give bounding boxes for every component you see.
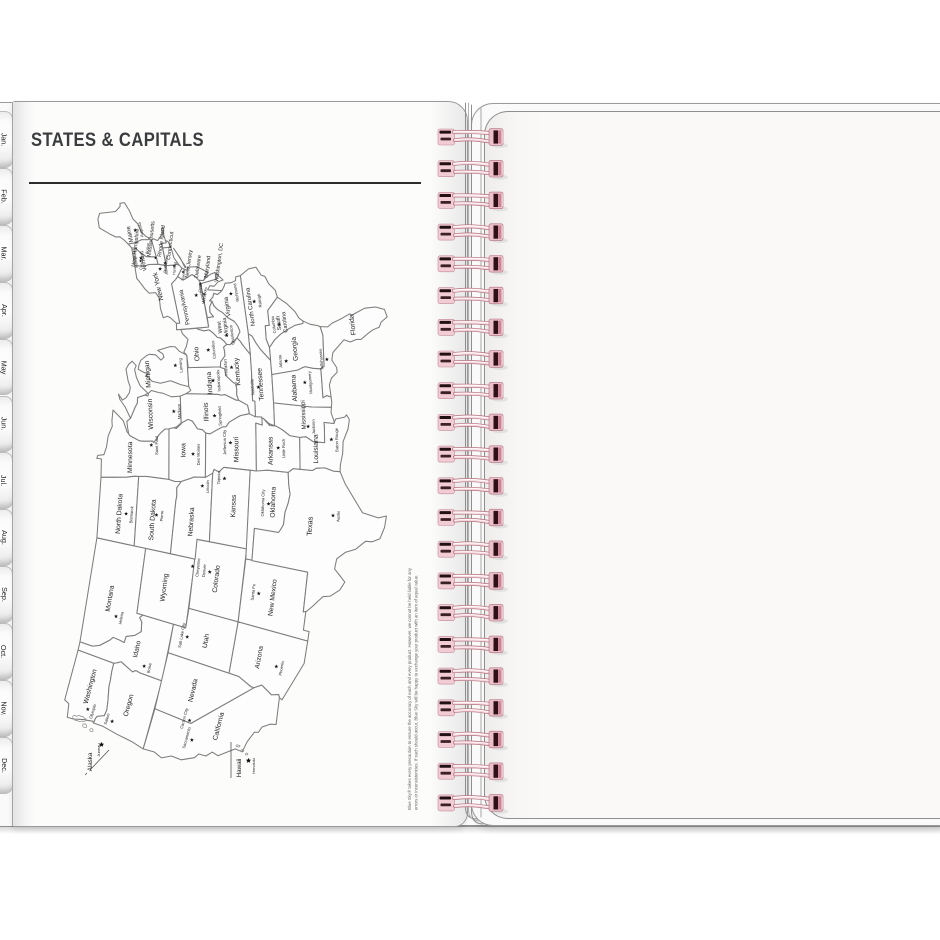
svg-text:Lincoln: Lincoln	[205, 479, 210, 493]
svg-text:Iowa: Iowa	[180, 443, 187, 458]
svg-text:Missouri: Missouri	[233, 436, 240, 462]
svg-text:Pierre: Pierre	[159, 510, 165, 522]
svg-text:Jackson: Jackson	[311, 418, 317, 434]
svg-text:Springfield: Springfield	[217, 406, 223, 426]
svg-text:Little Rock: Little Rock	[281, 438, 286, 458]
svg-text:Wisconsin: Wisconsin	[147, 398, 155, 429]
svg-text:errors or inconsistencies. If: errors or inconsistencies. If such shoul…	[414, 575, 419, 810]
svg-text:Arkansas: Arkansas	[267, 436, 274, 465]
svg-text:Texas: Texas	[305, 516, 315, 536]
svg-text:Topeka: Topeka	[216, 470, 221, 484]
svg-text:Oklahoma City: Oklahoma City	[260, 489, 266, 517]
svg-text:Washington, DC: Washington, DC	[214, 243, 225, 283]
svg-text:Minnesota: Minnesota	[127, 441, 134, 473]
svg-text:Baton Rouge: Baton Rouge	[334, 427, 340, 452]
svg-text:Ohio: Ohio	[193, 346, 201, 361]
svg-text:Madison: Madison	[176, 403, 182, 419]
svg-text:Saint Paul: Saint Paul	[154, 436, 159, 455]
svg-text:Jefferson City: Jefferson City	[222, 429, 227, 455]
svg-text:Des Moines: Des Moines	[196, 444, 201, 466]
svg-text:Kansas: Kansas	[230, 494, 238, 518]
svg-text:Hawaii: Hawaii	[236, 759, 243, 778]
svg-text:Blue Sky® takes every precauti: Blue Sky® takes every precaution to ensu…	[407, 567, 412, 810]
svg-text:Austin: Austin	[335, 510, 340, 522]
svg-text:Oklahoma: Oklahoma	[270, 486, 278, 517]
svg-text:Honolulu: Honolulu	[251, 758, 256, 774]
svg-text:Illinois: Illinois	[203, 402, 211, 422]
svg-text:Juneau: Juneau	[96, 743, 101, 756]
svg-text:Louisiana: Louisiana	[313, 434, 321, 463]
svg-text:Alaska: Alaska	[87, 752, 94, 771]
